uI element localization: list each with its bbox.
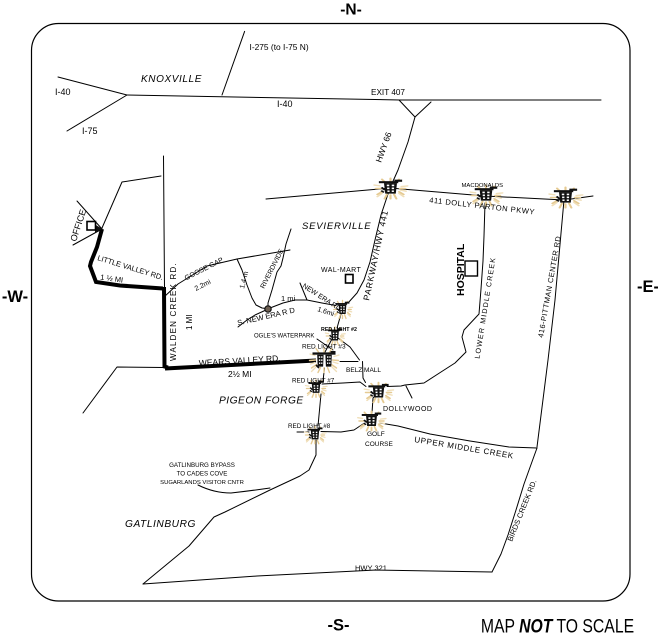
svg-text:1.4 m: 1.4 m [239,271,250,290]
svg-text:BIRDS CREEK RD.: BIRDS CREEK RD. [506,478,539,542]
svg-text:HWY 321: HWY 321 [355,564,387,573]
svg-text:LOWER MIDDLE CREEK: LOWER MIDDLE CREEK [473,256,498,359]
svg-text:I-275 (to I-75 N): I-275 (to I-75 N) [250,42,309,52]
svg-text:TO CADES COVE: TO CADES COVE [177,471,228,478]
svg-text:UPPER MIDDLE CREEK: UPPER MIDDLE CREEK [414,435,515,460]
svg-text:RED LIGHT #8: RED LIGHT #8 [288,423,331,430]
svg-text:RIVERDIVIDE: RIVERDIVIDE [260,248,286,290]
svg-text:SUGARLANDS VISITOR CNTR: SUGARLANDS VISITOR CNTR [160,480,244,486]
svg-text:EXIT 407: EXIT 407 [371,88,405,97]
svg-text:2.2mi: 2.2mi [194,279,213,293]
svg-text:RED LIGHT #7: RED LIGHT #7 [292,378,335,385]
svg-text:-S-: -S- [328,617,350,635]
svg-text:MACDONALDS: MACDONALDS [462,183,504,189]
svg-text:-N-: -N- [340,2,362,19]
svg-text:PIGEON FORGE: PIGEON FORGE [219,396,304,407]
svg-text:MAP NOT TO SCALE: MAP NOT TO SCALE [481,615,634,637]
svg-text:HOSPITAL: HOSPITAL [455,243,467,296]
svg-text:DOLLYWOOD: DOLLYWOOD [383,406,433,413]
svg-text:I-40: I-40 [277,99,293,109]
svg-text:GATLINBURG BYPASS: GATLINBURG BYPASS [169,462,235,469]
svg-text:416-PITTMAN CENTER RD: 416-PITTMAN CENTER RD [536,235,563,338]
svg-text:2½ MI: 2½ MI [228,369,252,379]
svg-text:HWY 66: HWY 66 [373,130,393,163]
svg-text:GOLF: GOLF [367,431,385,438]
svg-text:WALDEN CREEK RD.: WALDEN CREEK RD. [169,262,178,361]
svg-text:1 mi: 1 mi [281,294,296,303]
svg-text:-W-: -W- [2,288,28,306]
svg-text:COURSE: COURSE [365,441,393,448]
svg-text:BELZ MALL: BELZ MALL [346,367,381,374]
svg-text:I-75: I-75 [82,126,98,136]
svg-text:GOOSE GAP: GOOSE GAP [184,257,225,283]
svg-text:SEVIERVILLE: SEVIERVILLE [302,221,371,232]
svg-text:OFFICE: OFFICE [68,208,88,242]
svg-text:GATLINBURG: GATLINBURG [125,519,196,530]
svg-text:KNOXVILLE: KNOXVILLE [141,74,202,85]
svg-text:RED LIGHT #3: RED LIGHT #3 [302,344,346,351]
svg-text:OGLE'S WATERPARK: OGLE'S WATERPARK [254,334,314,340]
svg-text:1 MI: 1 MI [185,314,194,330]
svg-text:-E-: -E- [637,278,658,296]
svg-text:I-40: I-40 [55,87,71,97]
svg-text:RED LIGHT #2: RED LIGHT #2 [321,327,357,333]
svg-text:WAL-MART: WAL-MART [321,267,361,274]
